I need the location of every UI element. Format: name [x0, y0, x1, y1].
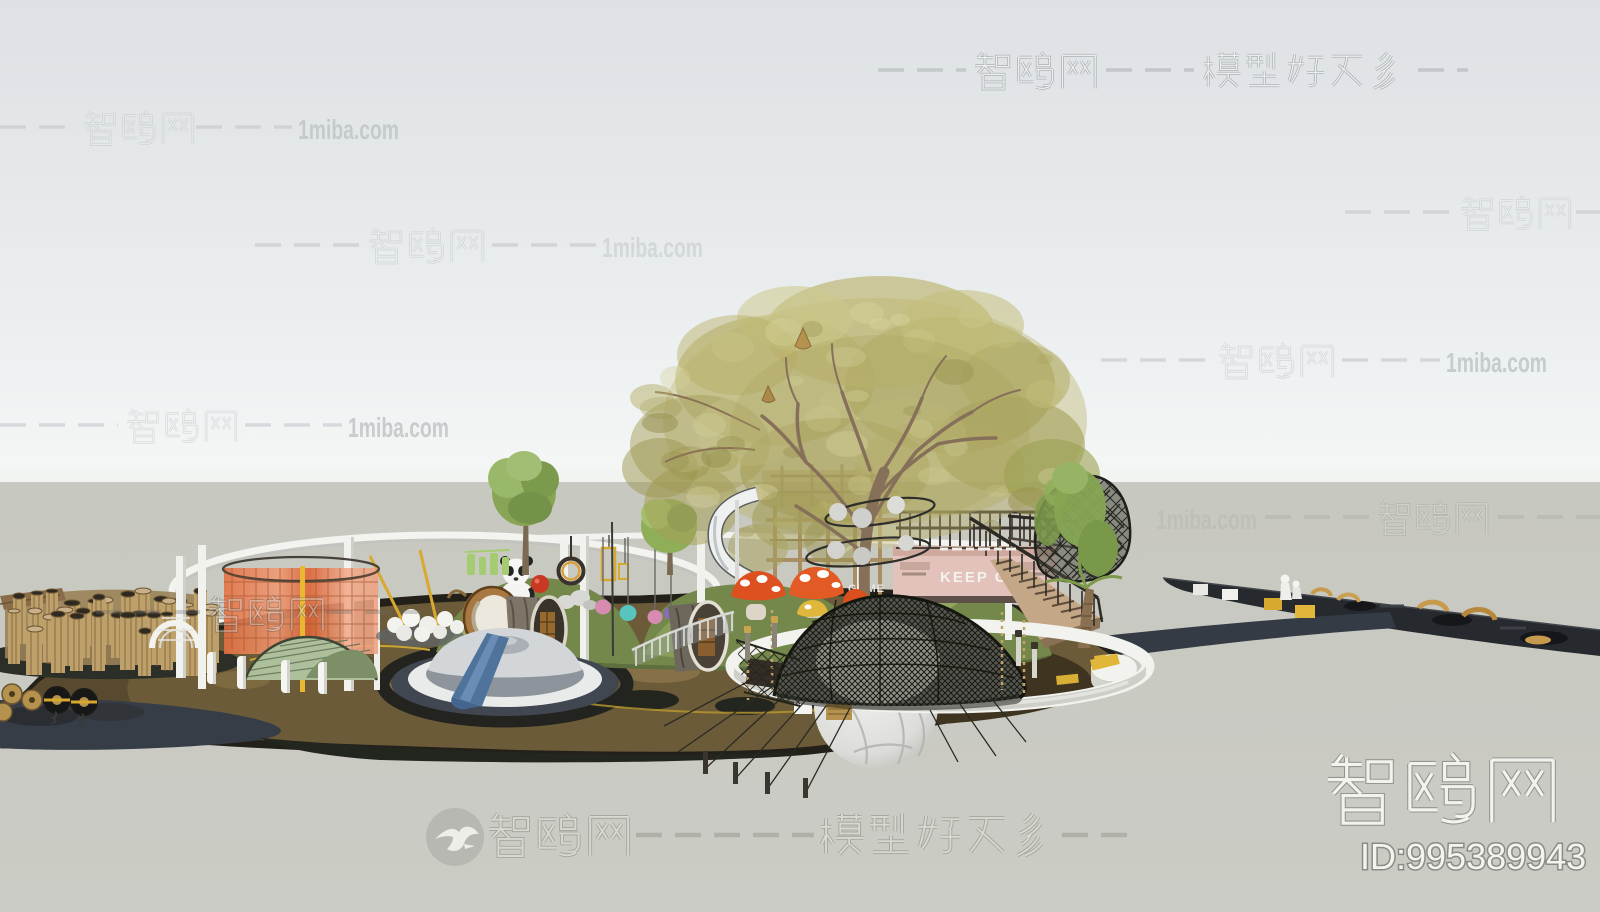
svg-text:1miba.com: 1miba.com [298, 114, 399, 145]
svg-text:1miba.com: 1miba.com [602, 232, 703, 263]
svg-text:1miba.com: 1miba.com [1156, 504, 1257, 535]
svg-text:ID:995389943: ID:995389943 [1360, 836, 1586, 877]
svg-text:1miba.com: 1miba.com [348, 412, 449, 443]
svg-text:1miba.com: 1miba.com [1446, 347, 1547, 378]
